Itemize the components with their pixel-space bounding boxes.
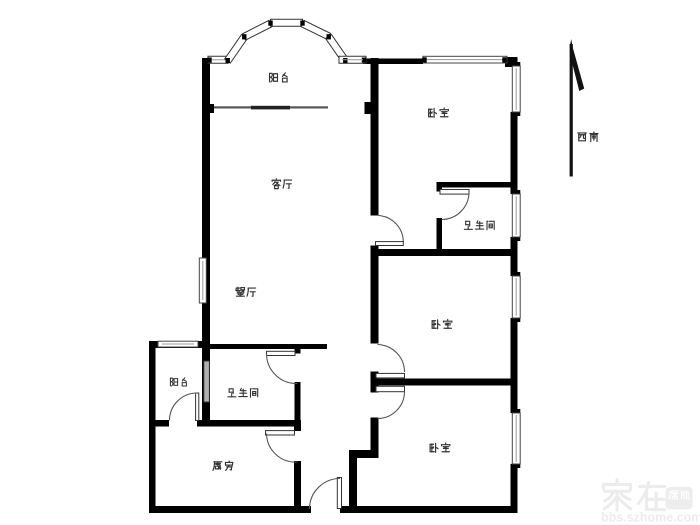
svg-text:bbs.szhome.com: bbs.szhome.com [601, 511, 700, 525]
